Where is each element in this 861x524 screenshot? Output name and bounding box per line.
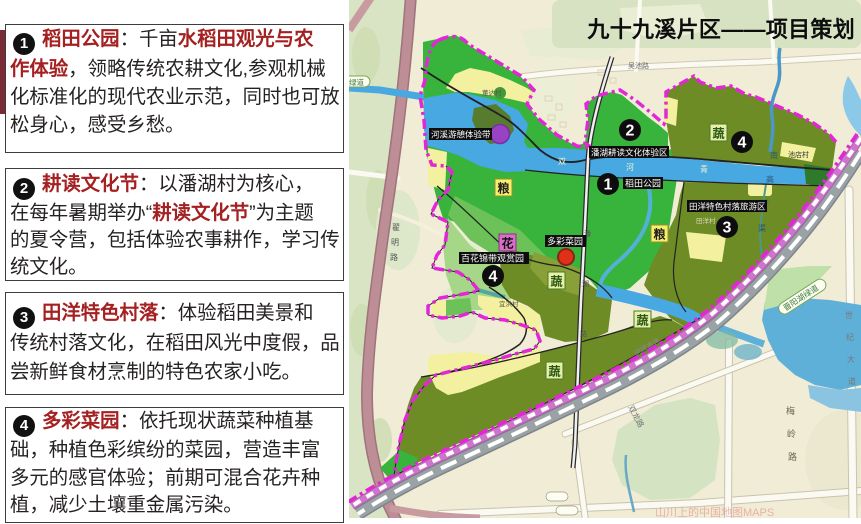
svg-text:粮: 粮 [654,227,666,242]
svg-text:吴池路: 吴池路 [628,61,649,70]
svg-text:南: 南 [770,150,778,160]
svg-text:山川上的中国地图MAPS: 山川上的中国地图MAPS [655,505,774,519]
svg-text:2: 2 [626,123,635,140]
svg-text:路: 路 [580,329,587,338]
svg-text:潘湖耕读文化体验区: 潘湖耕读文化体验区 [591,148,668,158]
svg-text:蔬: 蔬 [551,274,563,289]
svg-text:大: 大 [847,354,855,364]
svg-text:多彩菜园: 多彩菜园 [547,236,583,247]
svg-text:4: 4 [489,269,498,286]
svg-text:4: 4 [738,135,747,152]
svg-text:花: 花 [502,236,514,251]
svg-text:梅: 梅 [786,405,795,416]
svg-text:粮: 粮 [498,181,510,196]
svg-text:董达村: 董达村 [482,88,502,97]
svg-text:湖: 湖 [582,279,589,288]
svg-text:双: 双 [558,157,566,166]
svg-text:田洋村: 田洋村 [696,216,716,225]
svg-text:路: 路 [390,252,398,262]
svg-text:河溪游憩体验带: 河溪游憩体验带 [431,130,491,140]
svg-text:1: 1 [604,177,613,194]
svg-text:绿道: 绿道 [349,77,364,87]
svg-text:明: 明 [391,238,399,247]
svg-text:宜洪村: 宜洪村 [499,299,519,308]
svg-text:高: 高 [766,174,774,184]
svg-text:百花锦带观赏园: 百花锦带观赏园 [461,253,524,264]
svg-text:3: 3 [723,220,732,237]
svg-text:蔬: 蔬 [637,313,649,328]
svg-text:世: 世 [845,310,853,320]
svg-text:路: 路 [788,451,797,462]
svg-text:蔬: 蔬 [713,126,725,141]
svg-text:纪: 纪 [846,332,854,342]
svg-text:稻田公园: 稻田公园 [625,179,661,189]
svg-text:池店村: 池店村 [788,150,809,159]
svg-text:道: 道 [848,376,856,386]
svg-text:翟: 翟 [392,223,400,232]
svg-text:渠: 渠 [758,223,766,233]
svg-text:河: 河 [626,162,634,172]
svg-text:岭: 岭 [787,428,796,439]
svg-text:田洋特色村落旅游区: 田洋特色村落旅游区 [689,202,766,212]
svg-text:青: 青 [700,164,708,174]
svg-text:蔬: 蔬 [549,364,561,379]
